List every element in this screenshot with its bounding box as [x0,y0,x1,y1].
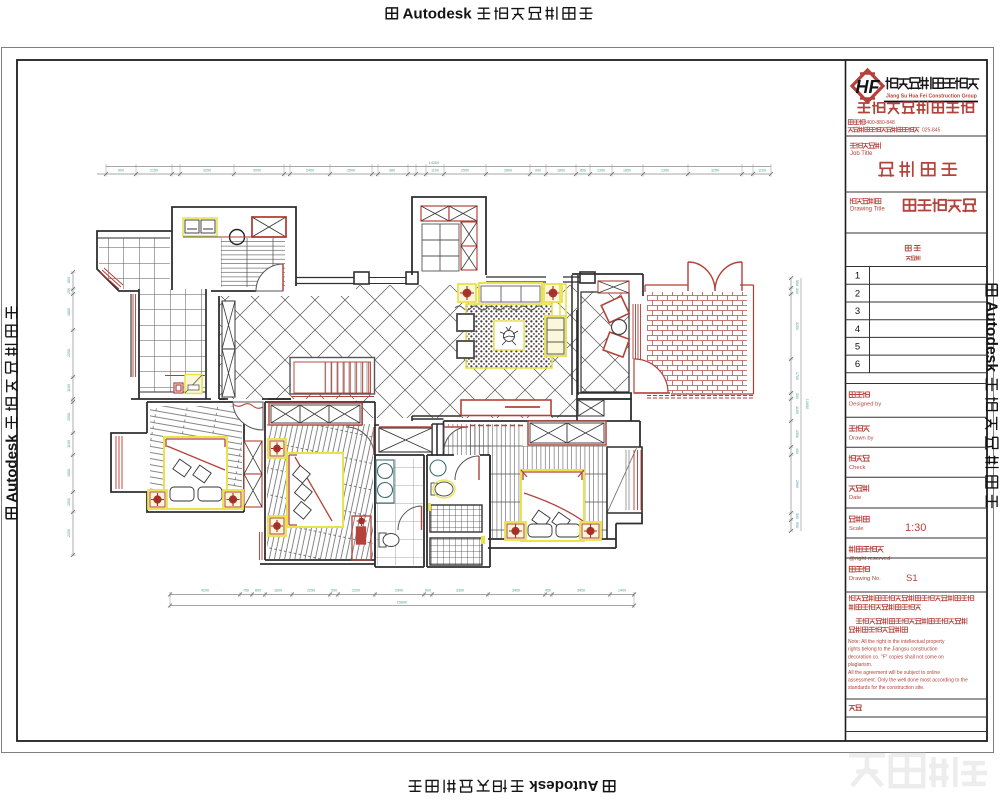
svg-text:standards for the construction: standards for the construction site. [848,685,924,691]
svg-text:300: 300 [795,393,799,399]
svg-text:1800: 1800 [557,169,565,173]
svg-text:Note: All the right in the int: Note: All the right in the intellectual … [848,639,945,645]
svg-text:1100: 1100 [431,169,439,173]
svg-text:assessment. Only the well done: assessment. Only the well done most acco… [848,678,968,684]
svg-text:Scale: Scale [849,526,864,532]
svg-text:800: 800 [580,169,586,173]
svg-text:2900: 2900 [795,480,799,488]
svg-text:1800: 1800 [67,308,71,316]
svg-text:rights belong to the Jiangsu c: rights belong to the Jiangsu constructio… [848,647,938,653]
svg-text:1700: 1700 [795,372,799,380]
svg-text:Job Title: Job Title [850,151,873,157]
svg-text:1100: 1100 [67,440,71,448]
svg-text:2150: 2150 [67,529,71,537]
svg-text:2400: 2400 [306,169,314,173]
svg-text:1400: 1400 [618,589,626,593]
svg-text:1850: 1850 [623,169,631,173]
svg-text:@right reserved: @right reserved [849,556,890,562]
svg-text:1100: 1100 [67,384,71,392]
svg-text:Autodesk: Autodesk [983,301,1000,372]
svg-text:500: 500 [331,589,337,593]
svg-text:12650: 12650 [805,399,809,410]
svg-text:Check: Check [849,465,866,471]
svg-text:3250: 3250 [203,169,211,173]
svg-text:3250: 3250 [795,322,799,330]
svg-text:Designed by: Designed by [849,402,881,408]
svg-text:1850: 1850 [67,469,71,477]
svg-text:2200: 2200 [352,589,360,593]
svg-text:plagiarism.: plagiarism. [848,662,872,668]
svg-text:2500: 2500 [347,169,355,173]
svg-text:Autodesk: Autodesk [402,6,472,23]
svg-text:3450: 3450 [577,589,585,593]
svg-text:1:30: 1:30 [905,522,926,534]
svg-text:1000: 1000 [67,498,71,506]
svg-text:850: 850 [67,277,71,283]
svg-text:2250: 2250 [307,589,315,593]
svg-text:900: 900 [118,169,124,173]
svg-text:Autodesk: Autodesk [4,434,21,503]
svg-text:4200: 4200 [201,589,209,593]
svg-text:2: 2 [855,288,860,299]
svg-text:380: 380 [389,169,395,173]
svg-text:025-845: 025-845 [922,128,941,134]
svg-text:Date: Date [849,495,861,501]
svg-text:Drawing Title: Drawing Title [850,207,885,213]
svg-text:800: 800 [255,589,261,593]
svg-text:3400: 3400 [512,589,520,593]
svg-text:Drawn by: Drawn by [849,435,874,441]
svg-text:1300: 1300 [661,169,669,173]
svg-text:4: 4 [855,324,860,335]
svg-text:HF: HF [856,77,881,97]
svg-text:2500: 2500 [461,169,469,173]
svg-text:500: 500 [425,589,431,593]
svg-text:S1: S1 [906,573,918,584]
svg-text:400: 400 [795,448,799,454]
svg-text:1550: 1550 [67,413,71,421]
svg-text:1: 1 [855,271,860,282]
svg-text:1300: 1300 [795,430,799,438]
svg-text:3: 3 [855,306,860,317]
svg-text:900: 900 [535,169,541,173]
svg-text:450: 450 [545,589,551,593]
svg-text:3250: 3250 [711,169,719,173]
svg-text:3300: 3300 [456,589,464,593]
svg-text:300: 300 [795,288,799,294]
svg-text::400-880-848: :400-880-848 [865,120,895,126]
svg-text:550: 550 [795,522,799,528]
svg-text:1100: 1100 [795,406,799,414]
svg-text:15600: 15600 [397,601,408,605]
svg-text:250: 250 [67,288,71,294]
svg-text:2150: 2150 [150,169,158,173]
svg-text:5: 5 [855,341,860,352]
svg-text:500: 500 [795,280,799,286]
svg-text:350: 350 [795,513,799,519]
svg-text:Drawing No.: Drawing No. [849,576,881,582]
svg-text:2900: 2900 [395,589,403,593]
svg-text:decoration co. "F" copies shal: decoration co. "F" copies shall not come… [848,654,944,660]
svg-text:All the agreement will be subj: All the agreement will be subject to onl… [848,670,940,676]
svg-text:1100: 1100 [758,169,766,173]
svg-text:2600: 2600 [504,169,512,173]
svg-text:3000: 3000 [253,169,261,173]
svg-text:1600: 1600 [274,589,282,593]
svg-text:6: 6 [855,359,860,370]
svg-text:750: 750 [243,589,249,593]
svg-text:Autodesk: Autodesk [529,777,599,794]
svg-text:Jiang Su Hua Fei Construction: Jiang Su Hua Fei Construction Group [886,94,977,100]
svg-text:2350: 2350 [67,349,71,357]
svg-text:14260: 14260 [429,161,440,165]
svg-text:1300: 1300 [597,169,605,173]
